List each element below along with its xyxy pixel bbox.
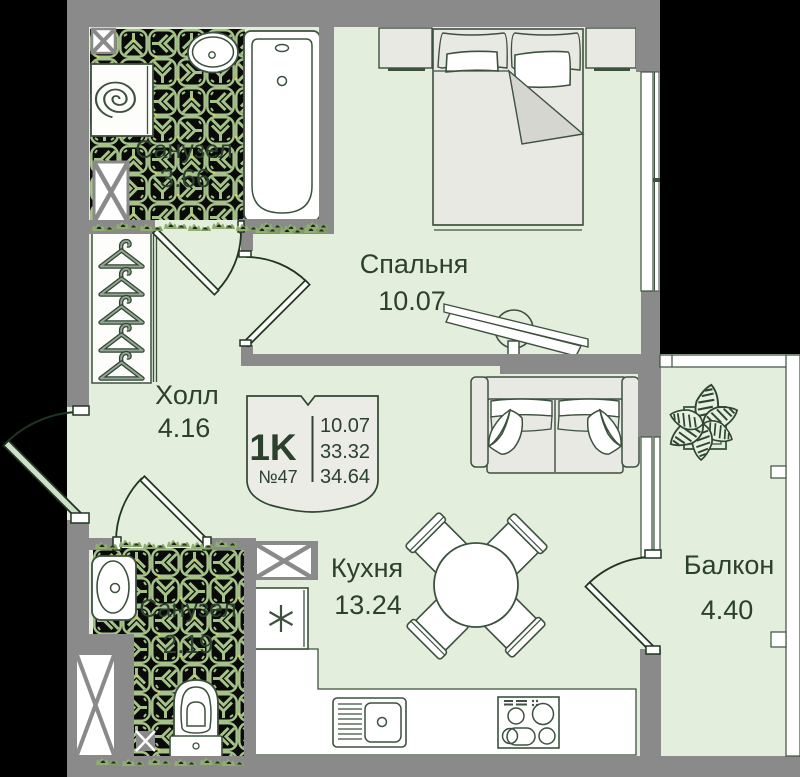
svg-text:Балкон: Балкон (684, 550, 775, 580)
svg-text:10.07: 10.07 (378, 286, 446, 316)
svg-text:Санузел: Санузел (135, 136, 232, 164)
svg-text:3.66: 3.66 (160, 163, 211, 193)
svg-text:33.32: 33.32 (320, 441, 370, 463)
svg-text:10.07: 10.07 (320, 415, 370, 437)
svg-text:1K: 1K (249, 427, 297, 468)
svg-text:№47: №47 (258, 467, 297, 487)
svg-text:Холл: Холл (155, 380, 219, 410)
svg-text:Спальня: Спальня (360, 249, 469, 279)
svg-text:Кухня: Кухня (331, 553, 403, 583)
svg-text:Санузел: Санузел (139, 595, 236, 623)
svg-text:4.16: 4.16 (158, 413, 211, 443)
svg-text:34.64: 34.64 (320, 466, 370, 488)
svg-text:4.40: 4.40 (701, 595, 754, 625)
svg-text:13.24: 13.24 (334, 590, 402, 620)
svg-text:2.19: 2.19 (163, 629, 214, 659)
